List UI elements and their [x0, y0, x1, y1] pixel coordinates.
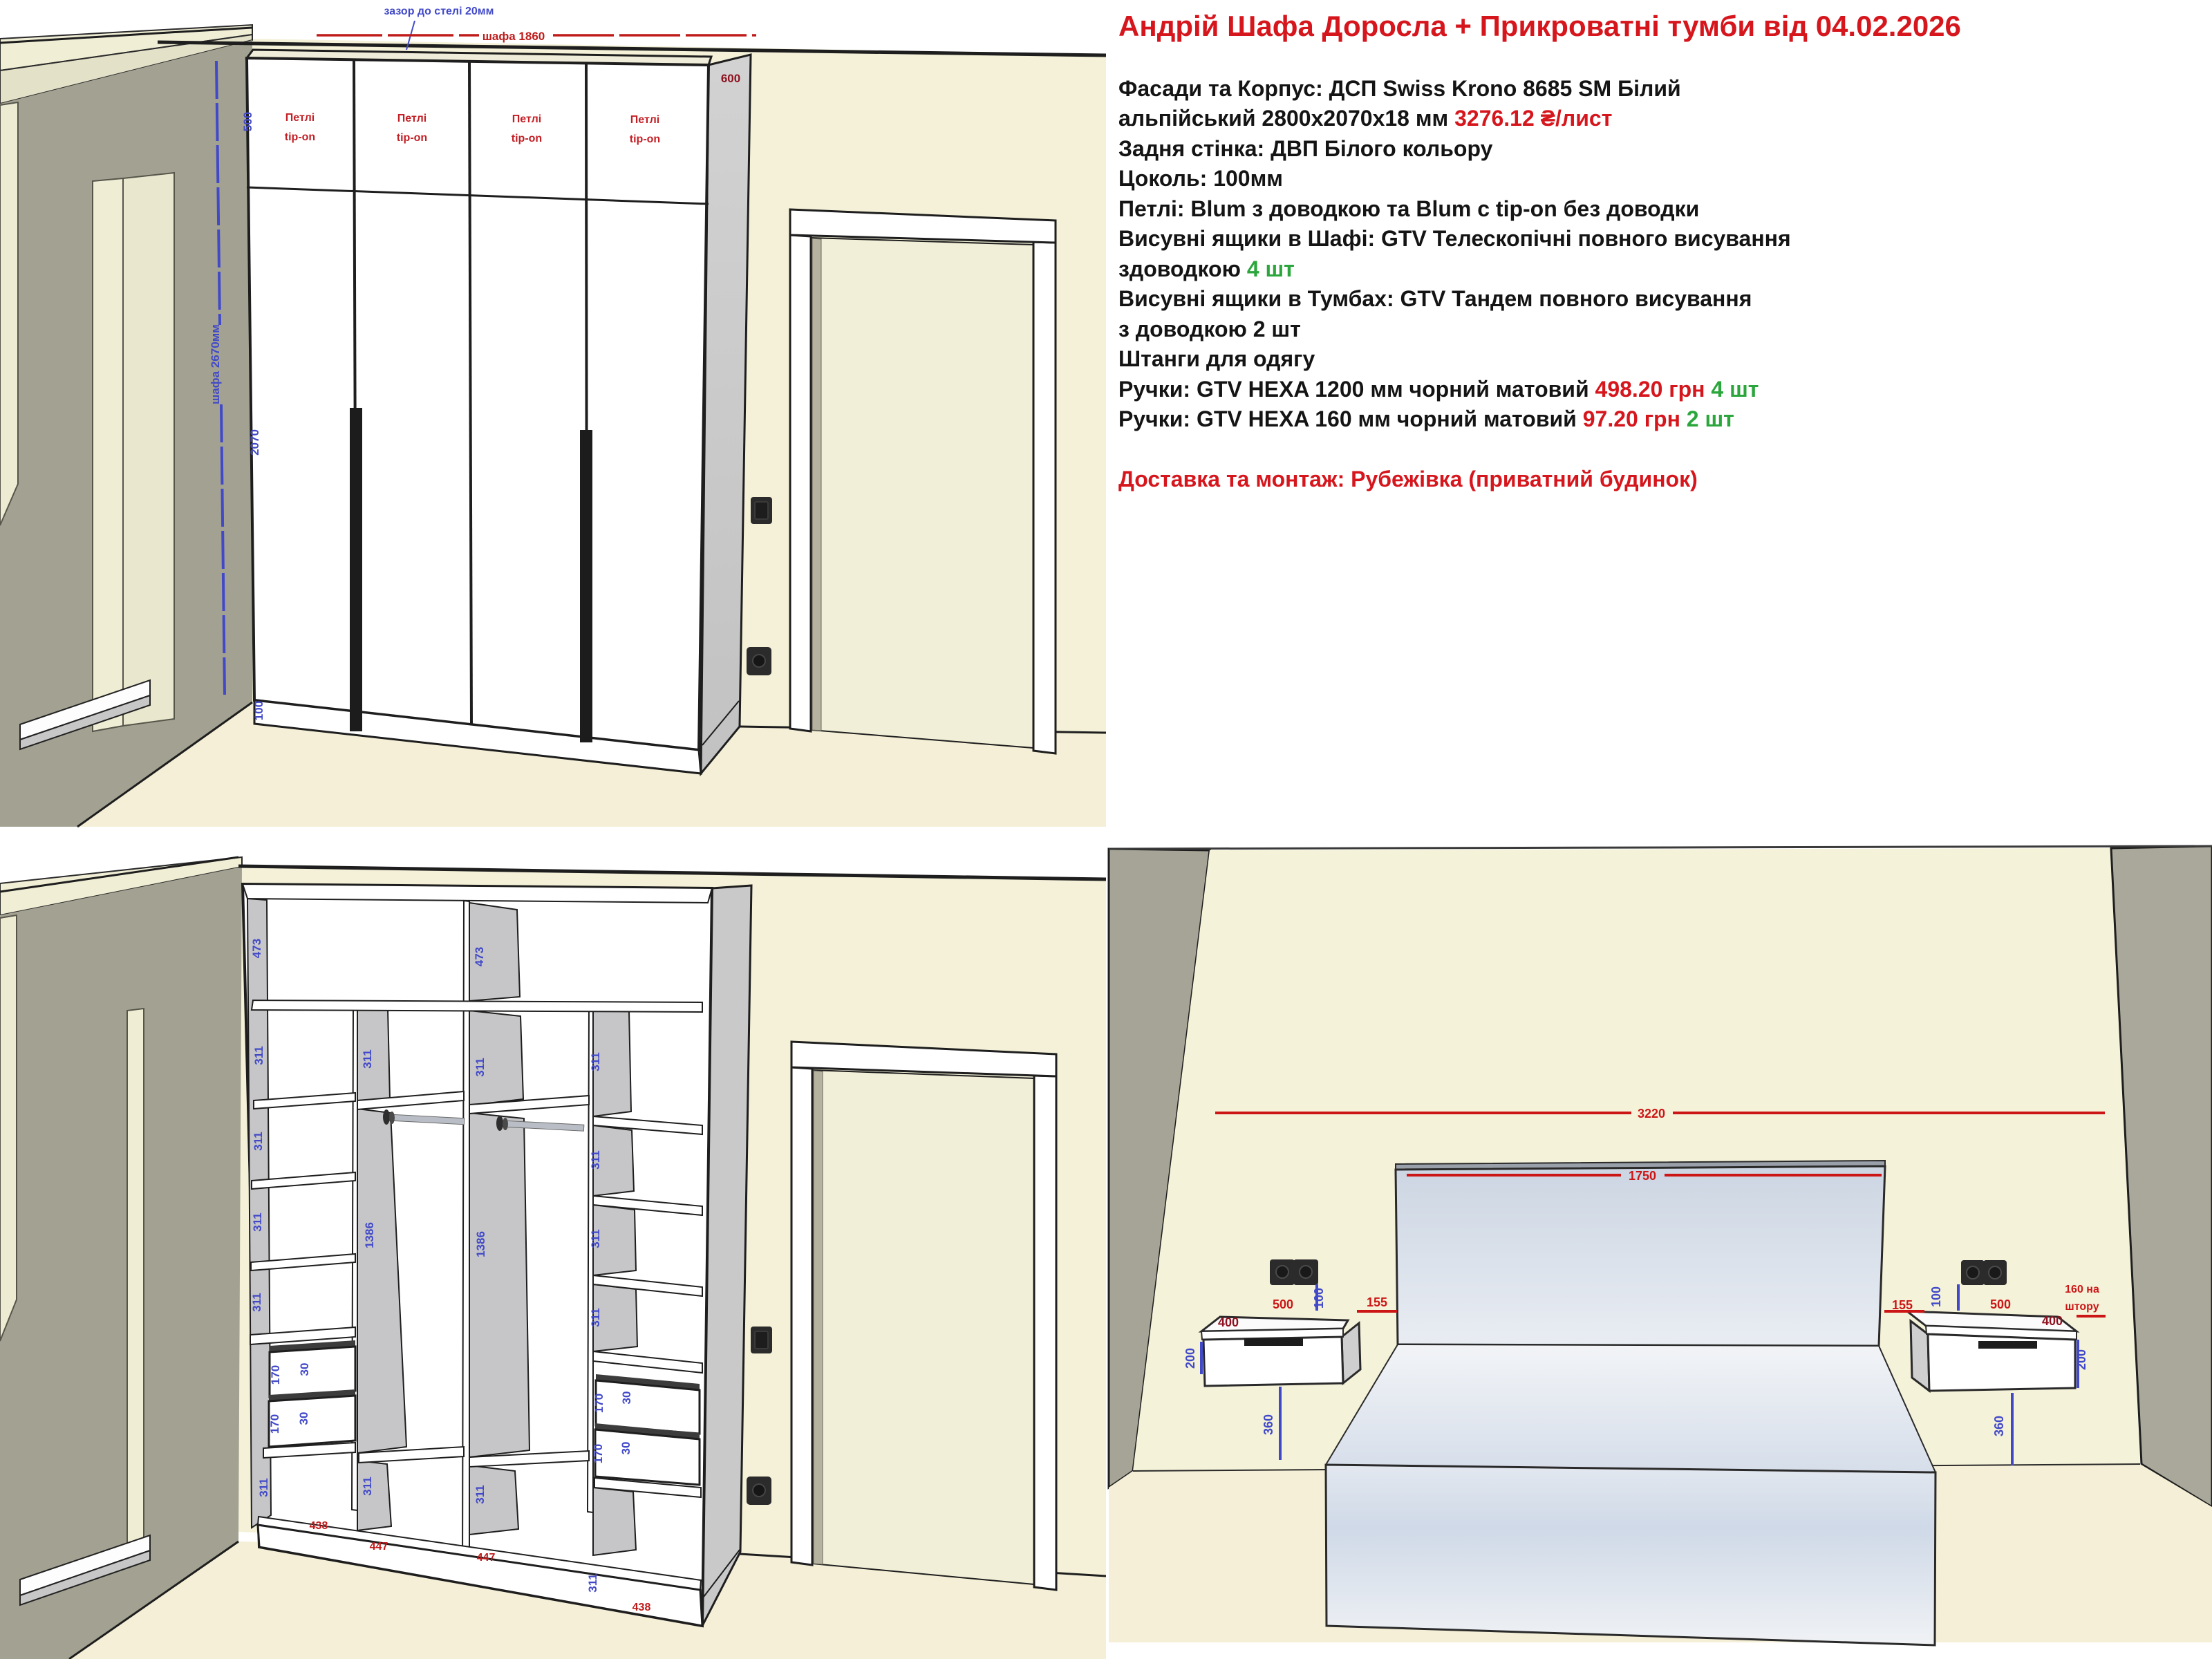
svg-text:360: 360 — [1992, 1416, 2006, 1436]
svg-text:500: 500 — [1990, 1297, 2011, 1311]
svg-text:311: 311 — [589, 1150, 602, 1169]
svg-text:Петлі: Петлі — [285, 112, 315, 124]
svg-text:447: 447 — [370, 1541, 388, 1553]
svg-text:100: 100 — [1929, 1286, 1943, 1307]
svg-text:311: 311 — [250, 1293, 263, 1311]
svg-text:311: 311 — [251, 1212, 264, 1231]
svg-text:зазор до стелі 20мм: зазор до стелі 20мм — [384, 6, 494, 17]
svg-text:155: 155 — [1367, 1295, 1387, 1309]
svg-text:160 на: 160 на — [2065, 1284, 2099, 1295]
svg-text:438: 438 — [310, 1520, 328, 1532]
svg-text:311: 311 — [252, 1132, 265, 1150]
svg-text:400: 400 — [1218, 1315, 1239, 1329]
svg-text:311: 311 — [586, 1573, 599, 1592]
svg-text:30: 30 — [297, 1412, 310, 1425]
svg-text:438: 438 — [632, 1602, 651, 1613]
svg-text:tip-on: tip-on — [285, 131, 315, 143]
svg-text:311: 311 — [589, 1052, 602, 1071]
svg-text:tip-on: tip-on — [512, 133, 542, 144]
svg-text:200: 200 — [1183, 1348, 1197, 1369]
svg-text:штору: штору — [2065, 1301, 2099, 1313]
svg-text:шафа 2670мм: шафа 2670мм — [209, 324, 222, 404]
svg-text:30: 30 — [620, 1391, 633, 1405]
svg-text:600: 600 — [721, 72, 740, 85]
svg-text:473: 473 — [473, 947, 486, 966]
svg-text:311: 311 — [257, 1478, 270, 1497]
svg-text:170: 170 — [269, 1365, 282, 1385]
svg-text:400: 400 — [2042, 1314, 2063, 1328]
svg-text:шафа 1860: шафа 1860 — [482, 30, 545, 43]
svg-text:100: 100 — [252, 701, 265, 720]
svg-text:311: 311 — [361, 1049, 374, 1068]
svg-text:30: 30 — [298, 1363, 311, 1376]
svg-text:Петлі: Петлі — [630, 114, 659, 126]
svg-text:473: 473 — [250, 939, 263, 958]
svg-text:360: 360 — [1262, 1414, 1275, 1435]
svg-text:500: 500 — [241, 112, 254, 131]
svg-text:170: 170 — [592, 1394, 606, 1413]
svg-text:3220: 3220 — [1638, 1107, 1665, 1121]
svg-text:1386: 1386 — [474, 1231, 487, 1257]
svg-text:311: 311 — [589, 1308, 602, 1327]
svg-text:170: 170 — [592, 1444, 605, 1463]
svg-text:311: 311 — [589, 1229, 602, 1248]
svg-text:311: 311 — [361, 1477, 374, 1495]
svg-text:30: 30 — [619, 1442, 632, 1455]
svg-text:311: 311 — [474, 1058, 487, 1076]
svg-text:2070: 2070 — [248, 429, 261, 456]
svg-text:311: 311 — [474, 1485, 487, 1503]
svg-text:Петлі: Петлі — [397, 113, 427, 124]
svg-text:tip-on: tip-on — [397, 132, 427, 144]
svg-text:311: 311 — [252, 1046, 265, 1065]
svg-text:tip-on: tip-on — [630, 133, 660, 145]
svg-text:Петлі: Петлі — [512, 113, 541, 125]
svg-text:100: 100 — [1312, 1288, 1326, 1309]
svg-text:1386: 1386 — [363, 1222, 376, 1248]
svg-text:500: 500 — [1273, 1297, 1293, 1311]
svg-text:170: 170 — [268, 1414, 281, 1434]
svg-text:1750: 1750 — [1629, 1169, 1656, 1183]
svg-text:447: 447 — [477, 1552, 496, 1564]
